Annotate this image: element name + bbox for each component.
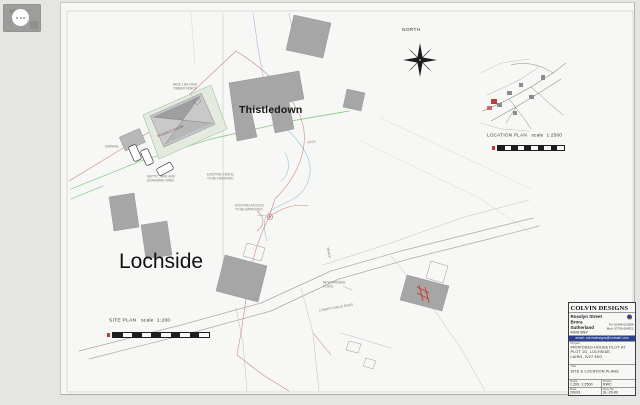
scalebar-origin-mark (107, 333, 110, 337)
drawn-value: RWC (603, 383, 634, 387)
drawing-thumbnail[interactable] (3, 4, 41, 32)
annotation-passing-place: NEW PASSING PLACE (323, 281, 345, 289)
lochside-label: Lochside (119, 250, 203, 274)
annotation-fence-removed: EXISTING FENCE TO BE REMOVED (207, 173, 234, 181)
location-plot-highlight (487, 99, 497, 110)
location-plan-map (481, 59, 566, 131)
title-block-grid: Scale 1:200, 1:2500 Drawn RWC Date 2/6/0… (569, 379, 635, 395)
site-plan-scalebar (107, 332, 210, 338)
project-box: Project PROPOSED HOUSE PLOT AT PLOT 1G, … (569, 341, 635, 364)
thistledown-label: Thistledown (239, 104, 302, 116)
drawing-sheet: NORTH Thistledown Lochside POSSIBLE HOUS… (60, 2, 635, 395)
dwg-no-value: SL-29-00 (603, 391, 634, 395)
title-box: Title SITE & LOCATION PLANS (569, 364, 635, 379)
firm-address: Rosslyn Street Brora Sutherland KW9 6NY … (569, 313, 635, 336)
location-plan-scalebar (492, 145, 565, 151)
marked-plot-building (400, 261, 449, 311)
site-plan-caption: SITE PLAN scale 1:200 (109, 317, 170, 323)
annotation-access: EXISTING ACCESS TO BE IMPROVED (235, 204, 264, 212)
north-arrow-icon (403, 43, 437, 77)
north-label: NORTH (402, 27, 420, 32)
date-value: 2/6/03 (570, 391, 601, 395)
project-text: PROPOSED HOUSE PLOT AT PLOT 1G, LOCHSIDE… (571, 345, 634, 359)
annotation-septic: SEPTIC TANK AND SOAKAWAY AREA (147, 175, 175, 183)
location-plan-caption: LOCATION PLAN scale 1:2500 (487, 132, 562, 138)
drawing-title: SITE & LOCATION PLANS (571, 368, 634, 374)
viewer-background: { "colors": { "boundary_red": "#c98181",… (0, 0, 640, 405)
annotation-new-fence: NEW 1.8m HIGH TIMBER FENCE (173, 83, 197, 91)
garage-label: GARAGE (105, 145, 119, 149)
title-block: COLVIN DESIGNS Rosslyn Street Brora Suth… (568, 302, 636, 396)
firm-mobile: Mob: 07790 654321 (605, 327, 634, 331)
firm-logo-icon (626, 314, 634, 321)
scalebar-origin-mark (492, 146, 495, 150)
scale-value: 1:200, 1:2500 (570, 383, 601, 387)
address-postcode: KW9 6NY (571, 330, 605, 335)
loading-spinner-icon (12, 9, 29, 26)
firm-name: COLVIN DESIGNS (569, 303, 635, 313)
existing-buildings (109, 15, 376, 369)
access-marker (257, 214, 352, 290)
